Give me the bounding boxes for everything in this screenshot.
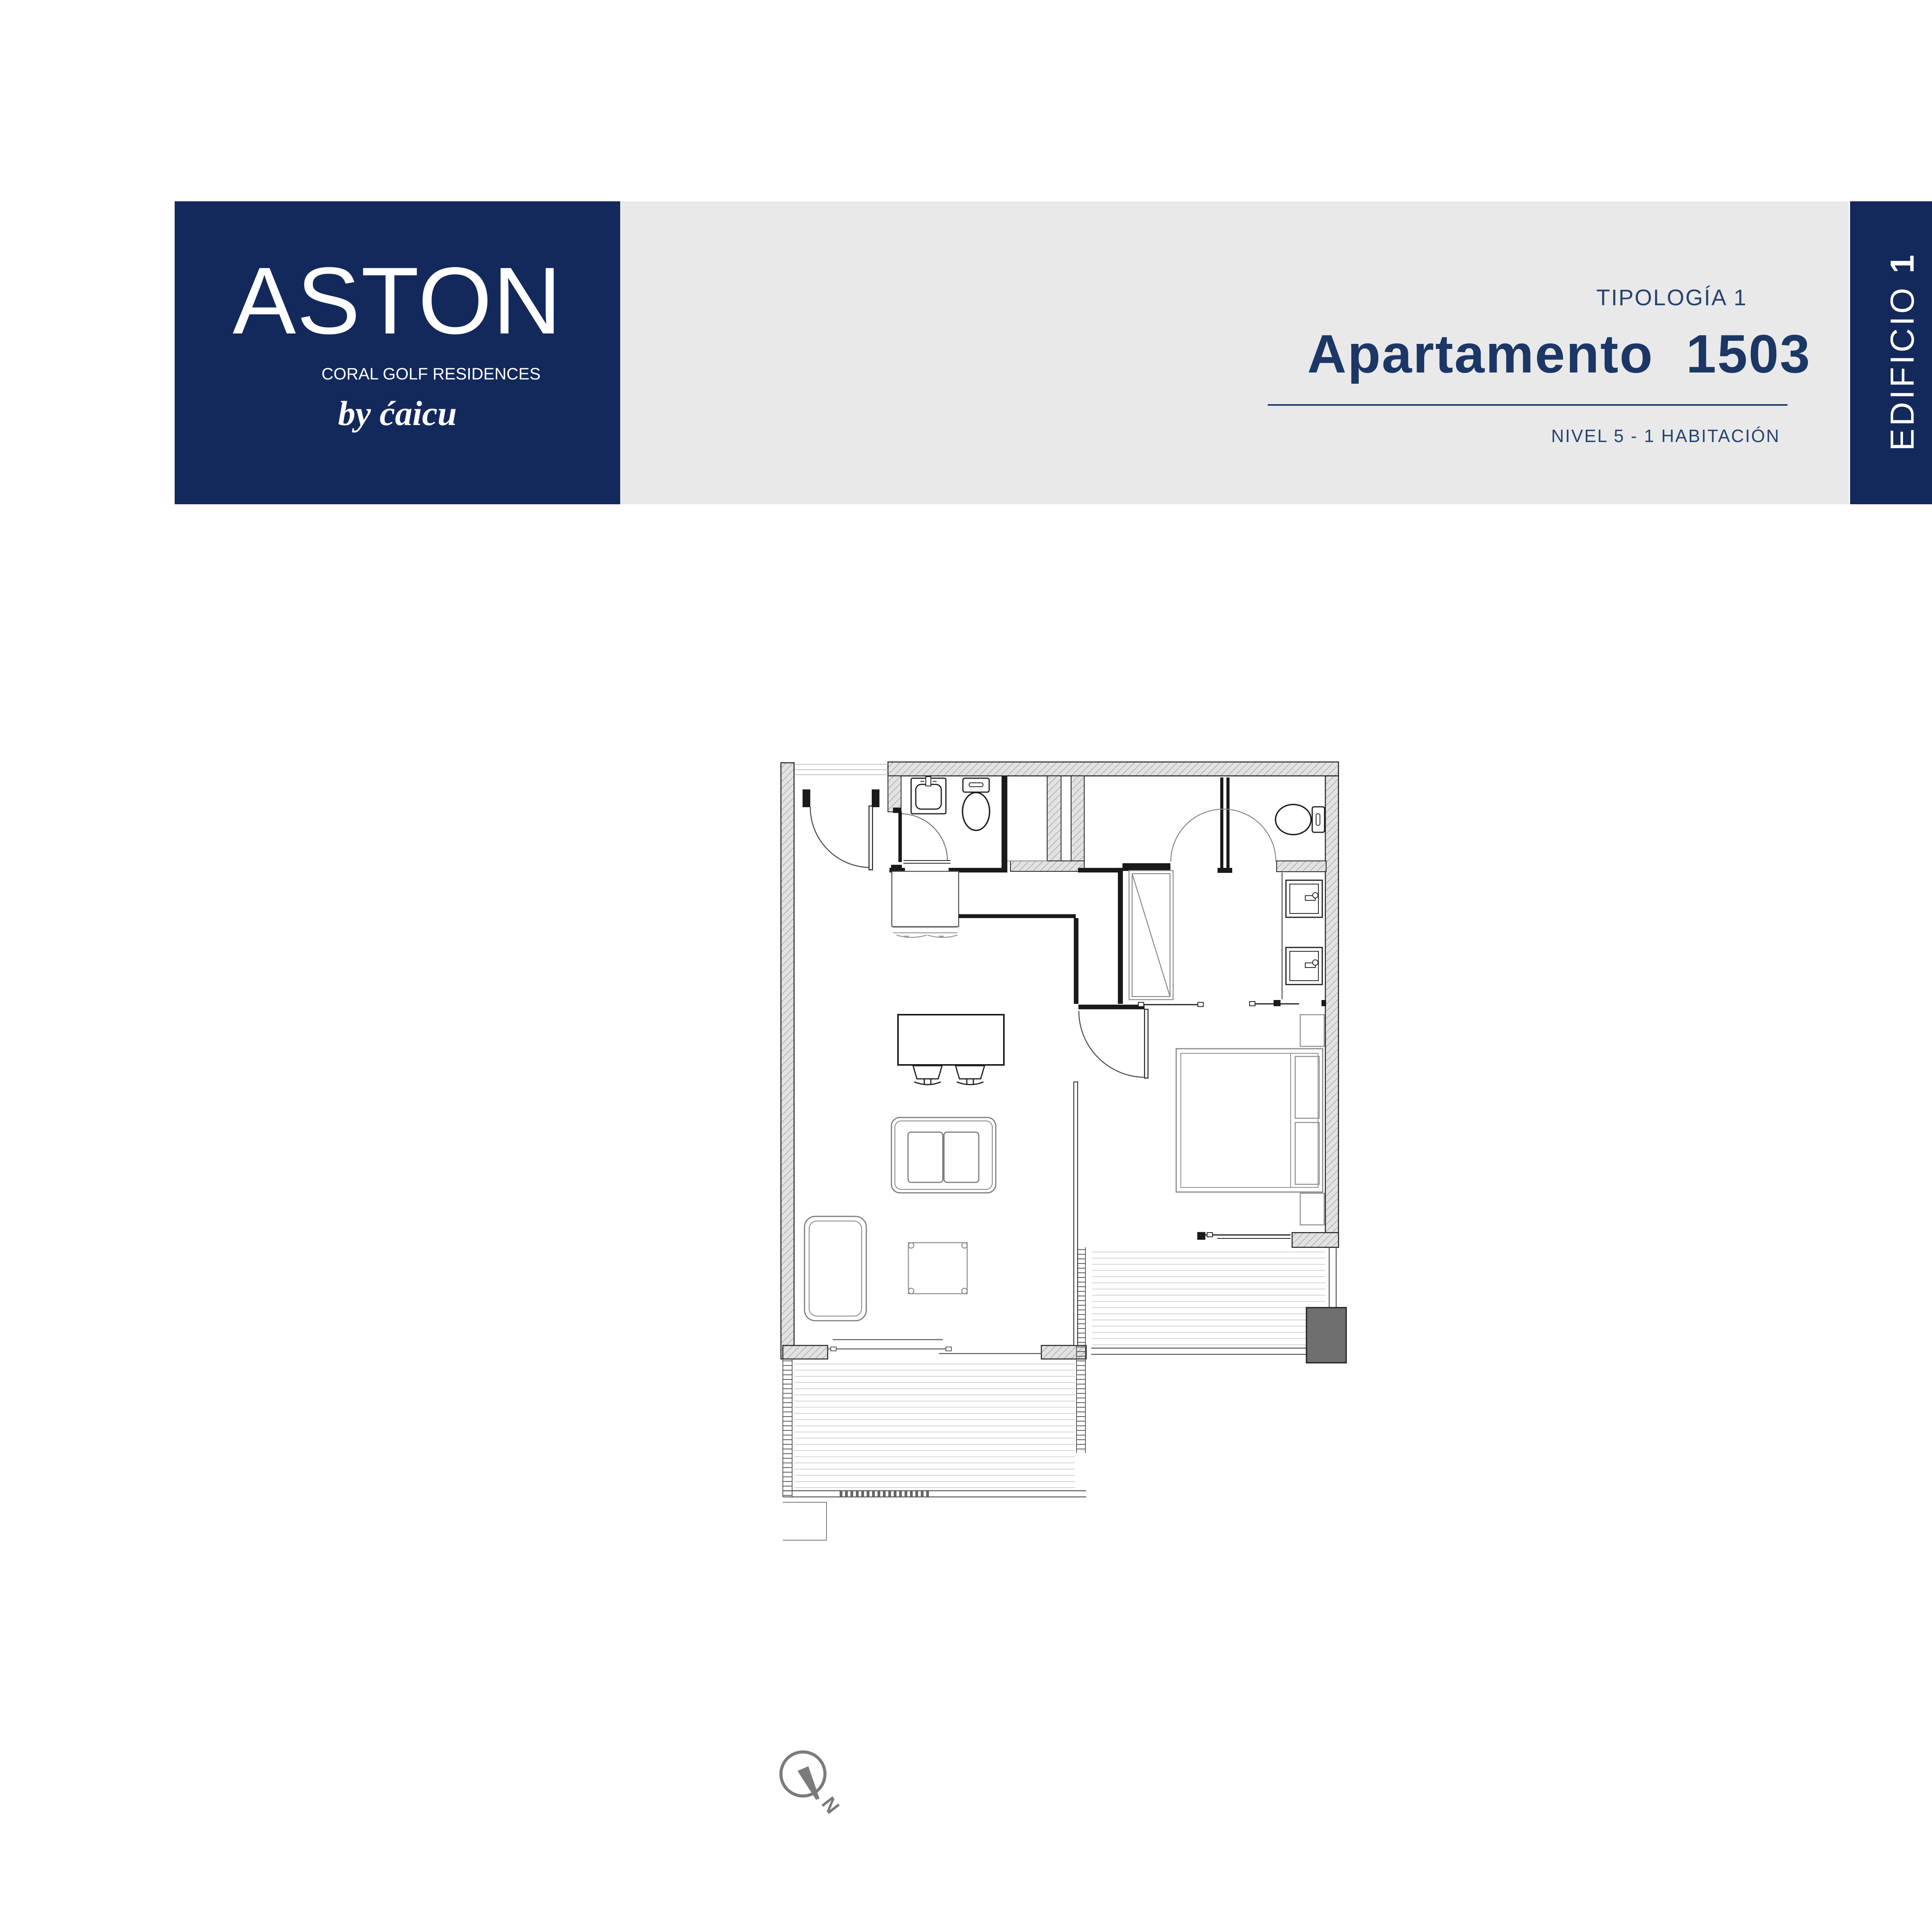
svg-text:N: N [817,1793,844,1818]
